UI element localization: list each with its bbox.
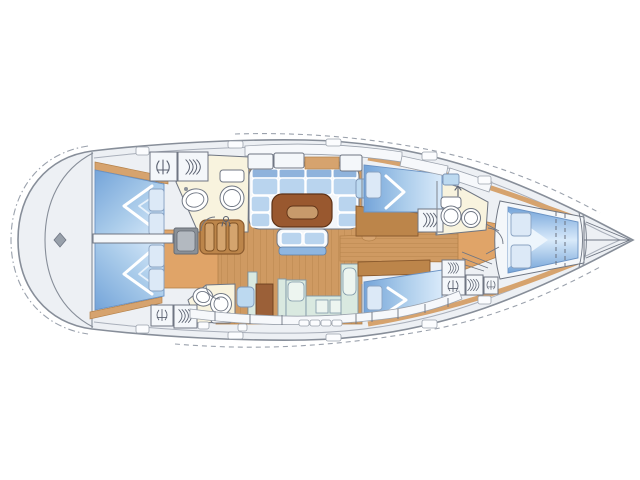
locker xyxy=(340,155,362,171)
back-cushion xyxy=(279,169,305,178)
deck-hatch xyxy=(326,334,341,341)
pillow xyxy=(149,245,164,267)
step-tread xyxy=(229,223,238,251)
drawer xyxy=(238,324,247,331)
back-cushion xyxy=(252,169,278,178)
step-tread xyxy=(217,223,226,251)
deck-hatch xyxy=(478,176,491,184)
seat-cushion xyxy=(306,178,332,195)
galley-sink xyxy=(288,282,304,301)
deck-hatch xyxy=(228,141,243,148)
bench-cushion xyxy=(304,232,325,245)
drawer xyxy=(198,322,209,329)
seat-cushion xyxy=(279,178,305,195)
faucet xyxy=(184,187,188,191)
pillow xyxy=(149,213,164,235)
seat-cushion xyxy=(338,213,357,227)
deck-hatch xyxy=(136,147,149,155)
deck-hatch xyxy=(228,332,243,339)
yacht-layout-diagram xyxy=(0,0,640,480)
drawer xyxy=(321,320,331,326)
counter xyxy=(278,279,286,317)
drawer xyxy=(299,320,309,326)
deck-hatch xyxy=(136,325,149,333)
seat-cushion xyxy=(251,213,270,227)
bench-cushion xyxy=(281,232,302,245)
pillow xyxy=(149,269,164,291)
saloon-dinette xyxy=(249,166,359,229)
locker xyxy=(274,153,304,168)
stove xyxy=(330,300,342,313)
table-inset xyxy=(287,206,318,219)
locker xyxy=(248,154,273,169)
pillow xyxy=(511,245,531,268)
pillow xyxy=(511,213,531,236)
seat-cushion xyxy=(333,178,357,195)
bench-step xyxy=(279,247,326,255)
pillow xyxy=(366,172,381,198)
hull-hatch xyxy=(443,174,459,185)
engine-hatch xyxy=(177,231,195,251)
deck-hatch xyxy=(326,139,341,146)
shower-seat xyxy=(237,287,254,307)
deck-hatch xyxy=(422,152,437,160)
stove xyxy=(316,300,328,313)
toilet-tank xyxy=(220,170,244,182)
pillow xyxy=(149,189,164,211)
back-cushion xyxy=(306,169,332,178)
seat-cushion xyxy=(252,178,278,195)
galley-cabinet xyxy=(256,284,273,320)
seat-cushion xyxy=(338,196,357,212)
shelf xyxy=(305,157,339,169)
drawer xyxy=(310,320,320,326)
deck-hatch xyxy=(478,296,491,304)
drawer xyxy=(332,320,342,326)
step-tread xyxy=(205,223,214,251)
locker xyxy=(466,275,483,295)
seat-cushion xyxy=(251,196,270,212)
centerline-bulkhead xyxy=(93,234,173,243)
saloon-bench xyxy=(277,229,328,255)
pillow xyxy=(367,286,382,310)
fridge-lid xyxy=(343,268,356,295)
deck-hatch xyxy=(422,320,437,328)
locker xyxy=(442,277,465,295)
